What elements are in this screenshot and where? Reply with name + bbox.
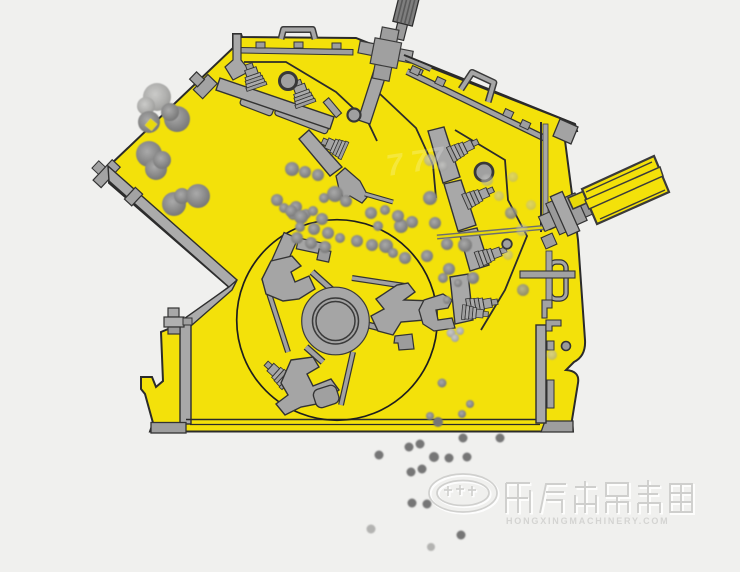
svg-text:HONGXINGMACHINERY.COM: HONGXINGMACHINERY.COM <box>506 516 669 526</box>
